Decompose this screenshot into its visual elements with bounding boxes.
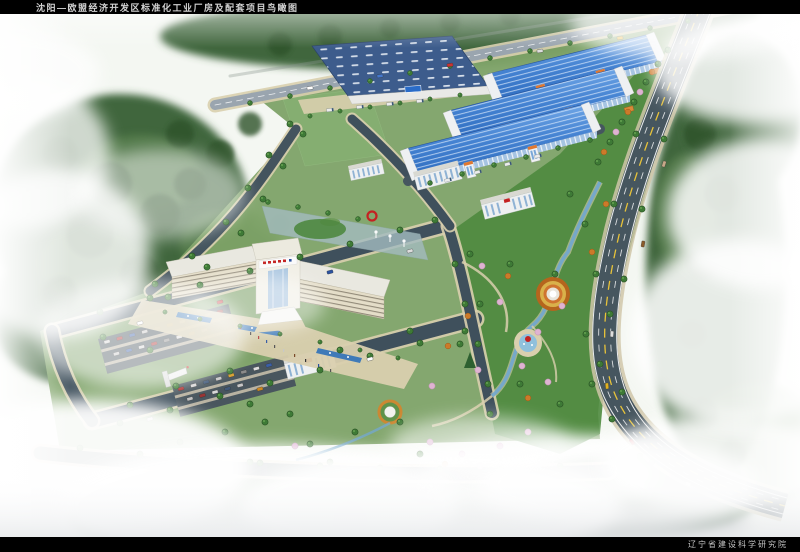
aerial-rendering	[0, 14, 800, 537]
page-title: 沈阳—欧盟经济开发区标准化工业厂房及配套项目鸟瞰图	[36, 1, 299, 14]
rendering-page: 沈阳—欧盟经济开发区标准化工业厂房及配套项目鸟瞰图	[0, 0, 800, 552]
credit-bar: 辽宁省建设科学研究院	[0, 537, 800, 552]
studio-credit: 辽宁省建设科学研究院	[688, 539, 788, 550]
title-bar: 沈阳—欧盟经济开发区标准化工业厂房及配套项目鸟瞰图	[0, 0, 800, 14]
warehouse-sign	[405, 85, 421, 92]
